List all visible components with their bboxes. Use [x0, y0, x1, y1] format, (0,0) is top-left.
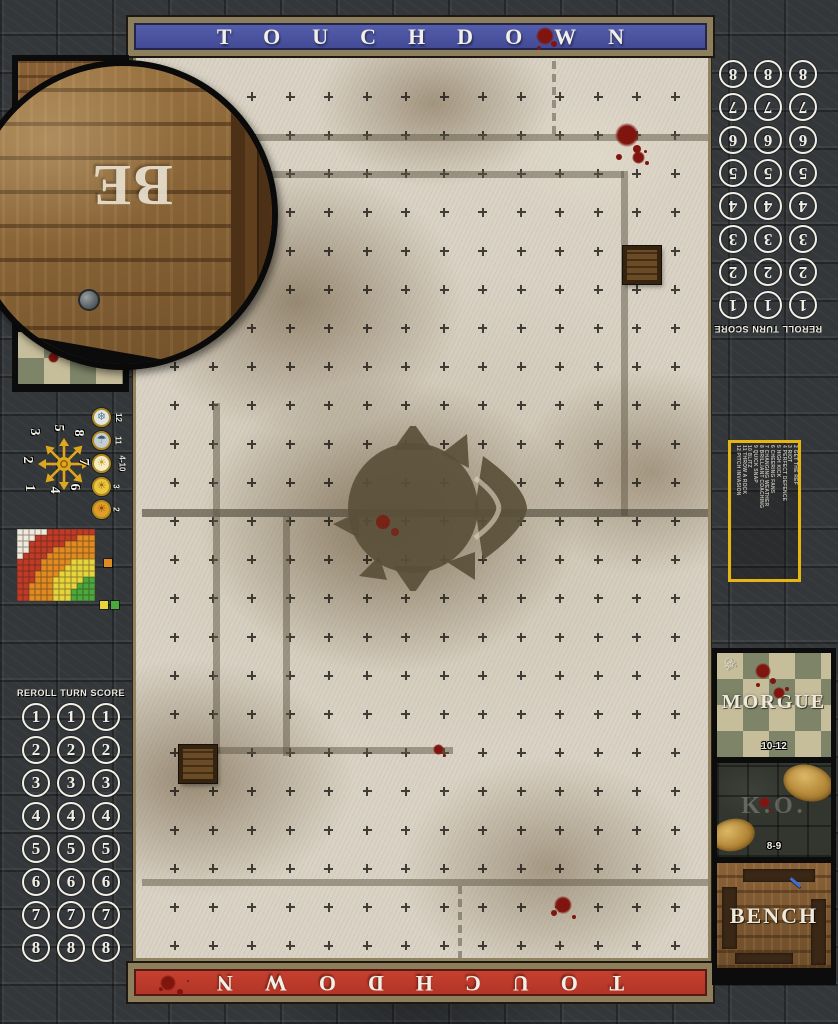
grid-cross: [170, 941, 179, 950]
grid-cross: [555, 941, 564, 950]
track-circle-6: 6: [754, 126, 782, 154]
track-row-4: 444: [710, 192, 826, 220]
pitch-line: [142, 879, 708, 886]
stud-knob: [78, 289, 100, 311]
grid-cross: [247, 478, 256, 487]
scatter-direction-8: 8: [70, 425, 86, 441]
grid-cross: [170, 478, 179, 487]
grid-cross: [170, 401, 179, 410]
grid-cross: [594, 401, 603, 410]
grid-cross: [594, 941, 603, 950]
track-circle-2: 2: [92, 736, 120, 764]
grid-cross: [209, 941, 218, 950]
grid-cross: [170, 787, 179, 796]
grid-cross: [363, 710, 372, 719]
grid-cross: [478, 285, 487, 294]
grid-cross: [324, 787, 333, 796]
grid-cross: [594, 787, 603, 796]
dugout-right: ☠ MORGUE 10-12 K.O. 8-9 BENCH: [712, 648, 836, 985]
grid-cross: [632, 748, 641, 757]
grid-cross: [671, 787, 680, 796]
grid-cross: [555, 92, 564, 101]
grid-cross: [594, 362, 603, 371]
grid-cross: [440, 633, 449, 642]
track-circle-1: 1: [719, 291, 747, 319]
grid-cross: [632, 633, 641, 642]
grid-cross: [363, 208, 372, 217]
track-row-2: 222: [13, 736, 129, 764]
grid-cross: [170, 903, 179, 912]
weather-entry-3: ☀3: [92, 477, 118, 496]
grid-cross: [286, 247, 295, 256]
grid-cross: [286, 478, 295, 487]
track-circle-1: 1: [789, 291, 817, 319]
grid-cross: [363, 594, 372, 603]
grid-cross: [632, 478, 641, 487]
scatter-direction-7: 7: [75, 454, 91, 470]
bench-label: BENCH: [717, 903, 831, 929]
bench-box: BENCH: [717, 863, 831, 968]
grid-cross: [594, 671, 603, 680]
grid-cross: [247, 401, 256, 410]
reroll-label: REROLL: [17, 688, 57, 698]
grid-cross: [632, 903, 641, 912]
grid-cross: [632, 324, 641, 333]
grid-cross: [440, 247, 449, 256]
grid-cross: [170, 555, 179, 564]
grid-cross: [594, 903, 603, 912]
grid-cross: [671, 826, 680, 835]
track-circle-6: 6: [789, 126, 817, 154]
track-circle-7: 7: [92, 901, 120, 929]
blood-splat: [632, 151, 645, 164]
range-legend-swatch: [104, 559, 112, 567]
grid-cross: [209, 787, 218, 796]
grid-cross: [401, 594, 410, 603]
track-circle-5: 5: [754, 159, 782, 187]
grid-cross: [555, 710, 564, 719]
grid-cross: [324, 941, 333, 950]
sweltering-heat-icon: ☀: [92, 500, 111, 519]
blood-splat: [759, 797, 770, 808]
pitch-line: [213, 747, 453, 754]
grid-cross: [286, 826, 295, 835]
grid-cross: [555, 787, 564, 796]
grid-cross: [247, 440, 256, 449]
grid-cross: [671, 671, 680, 680]
grid-cross: [632, 362, 641, 371]
blood-splat: [433, 744, 444, 755]
grid-cross: [363, 324, 372, 333]
blood-splat: [615, 123, 639, 147]
grid-cross: [632, 285, 641, 294]
grid-cross: [363, 247, 372, 256]
track-circle-7: 7: [22, 901, 50, 929]
grid-cross: [170, 633, 179, 642]
grid-cross: [594, 517, 603, 526]
perfect-weather-icon: ☀: [92, 454, 111, 473]
track-circle-3: 3: [789, 225, 817, 253]
grid-cross: [594, 633, 603, 642]
touchdown-banner-top-bar: TOUCHDOWN: [134, 23, 707, 50]
grid-cross: [555, 633, 564, 642]
blood-bowl-pitch-mat: TOUCHDOWN TOUCHDOWN REROLL TURN SCORE 11…: [0, 0, 838, 1024]
grid-cross: [440, 401, 449, 410]
track-row-5: 555: [710, 159, 826, 187]
grid-cross: [671, 478, 680, 487]
grid-cross: [671, 941, 680, 950]
grid-cross: [671, 324, 680, 333]
grid-cross: [594, 748, 603, 757]
grid-cross: [555, 247, 564, 256]
grid-cross: [440, 92, 449, 101]
grid-cross: [363, 285, 372, 294]
magnified-bench-letters: BE: [66, 140, 196, 230]
track-circle-5: 5: [22, 835, 50, 863]
pitch-line-dashed: [458, 886, 462, 959]
grid-cross: [440, 362, 449, 371]
track-circle-2: 2: [57, 736, 85, 764]
magnified-plank: [231, 66, 278, 364]
grid-cross: [247, 594, 256, 603]
grid-cross: [555, 478, 564, 487]
grid-cross: [632, 710, 641, 719]
track-circle-4: 4: [57, 802, 85, 830]
grid-cross: [324, 92, 333, 101]
grid-cross: [363, 787, 372, 796]
grid-cross: [478, 787, 487, 796]
score-label: SCORE: [714, 324, 749, 334]
track-circle-8: 8: [789, 60, 817, 88]
grid-cross: [401, 787, 410, 796]
grid-cross: [555, 826, 564, 835]
grid-cross: [401, 401, 410, 410]
grid-cross: [286, 92, 295, 101]
weather-value: 3: [112, 484, 121, 488]
grid-cross: [286, 787, 295, 796]
grid-cross: [247, 787, 256, 796]
grid-cross: [170, 710, 179, 719]
grid-cross: [286, 324, 295, 333]
grid-cross: [517, 787, 526, 796]
grid-cross: [170, 440, 179, 449]
grid-cross: [170, 864, 179, 873]
track-circle-3: 3: [719, 225, 747, 253]
grid-cross: [594, 864, 603, 873]
grid-cross: [324, 362, 333, 371]
bench-plank: [735, 953, 793, 964]
track-circle-6: 6: [92, 868, 120, 896]
grid-cross: [594, 478, 603, 487]
track-circle-2: 2: [754, 258, 782, 286]
grid-cross: [555, 748, 564, 757]
track-circle-5: 5: [789, 159, 817, 187]
grid-cross: [324, 710, 333, 719]
track-circle-4: 4: [92, 802, 120, 830]
grid-cross: [671, 247, 680, 256]
grid-cross: [401, 903, 410, 912]
grid-cross: [555, 208, 564, 217]
grid-cross: [247, 517, 256, 526]
track-circle-1: 1: [22, 703, 50, 731]
grid-cross: [478, 826, 487, 835]
scatter-direction-2: 2: [19, 452, 35, 468]
grid-cross: [671, 285, 680, 294]
grid-cross: [478, 92, 487, 101]
grid-cross: [671, 440, 680, 449]
range-legend-swatch: [100, 601, 108, 609]
track-circle-4: 4: [789, 192, 817, 220]
grid-cross: [594, 208, 603, 217]
grid-cross: [247, 555, 256, 564]
track-rows: 111222333444555666777888: [13, 703, 129, 962]
grid-cross: [555, 285, 564, 294]
grid-cross: [440, 324, 449, 333]
track-circle-8: 8: [754, 60, 782, 88]
grid-cross: [209, 864, 218, 873]
grid-cross: [286, 362, 295, 371]
track-circle-7: 7: [57, 901, 85, 929]
grid-cross: [401, 710, 410, 719]
grid-cross: [478, 401, 487, 410]
kickoff-line: 6 CHEERING FANS: [768, 445, 774, 579]
grid-cross: [517, 826, 526, 835]
grid-cross: [478, 710, 487, 719]
grid-cross: [594, 92, 603, 101]
scatter-direction-3: 3: [26, 424, 42, 440]
grid-cross: [555, 324, 564, 333]
grid-cross: [363, 903, 372, 912]
grid-cross: [478, 671, 487, 680]
track-circle-3: 3: [57, 769, 85, 797]
crate-top: [623, 246, 661, 284]
grid-cross: [671, 208, 680, 217]
touchdown-banner-top: TOUCHDOWN: [128, 17, 713, 56]
ko-label: K.O.: [717, 793, 831, 820]
track-circle-8: 8: [92, 934, 120, 962]
track-row-6: 666: [13, 868, 129, 896]
grid-cross: [478, 748, 487, 757]
blood-splat: [755, 663, 771, 679]
grid-cross: [517, 710, 526, 719]
grid-cross: [440, 826, 449, 835]
grid-cross: [555, 401, 564, 410]
grid-cross: [478, 633, 487, 642]
grid-cross: [401, 324, 410, 333]
track-circle-3: 3: [754, 225, 782, 253]
skeleton-icon: ☠: [720, 653, 740, 675]
scatter-direction-6: 6: [66, 479, 82, 495]
track-circle-1: 1: [92, 703, 120, 731]
bench-plank: [743, 869, 815, 882]
track-circle-3: 3: [92, 769, 120, 797]
track-circle-4: 4: [22, 802, 50, 830]
grid-cross: [170, 826, 179, 835]
track-circle-6: 6: [719, 126, 747, 154]
grid-cross: [440, 903, 449, 912]
grid-cross: [517, 671, 526, 680]
grid-cross: [517, 594, 526, 603]
grid-cross: [440, 941, 449, 950]
scatter-direction-4: 4: [46, 482, 62, 498]
crate-bottom: [179, 745, 217, 783]
grid-cross: [555, 517, 564, 526]
grid-cross: [478, 903, 487, 912]
grid-cross: [517, 285, 526, 294]
track-circle-8: 8: [719, 60, 747, 88]
grid-cross: [594, 285, 603, 294]
grid-cross: [401, 362, 410, 371]
track-row-7: 777: [13, 901, 129, 929]
morgue-box: ☠ MORGUE 10-12: [717, 653, 831, 757]
grid-cross: [440, 864, 449, 873]
weather-entry-11: ☂11: [92, 431, 122, 450]
score-track-left: REROLL TURN SCORE 1112223334445556667778…: [13, 688, 129, 962]
grid-cross: [401, 826, 410, 835]
grid-cross: [363, 671, 372, 680]
grid-cross: [671, 594, 680, 603]
track-row-1: 111: [710, 291, 826, 319]
grid-cross: [247, 903, 256, 912]
weather-value: 11: [114, 436, 123, 444]
grid-cross: [286, 401, 295, 410]
touchdown-banner-bottom: TOUCHDOWN: [128, 963, 713, 1002]
track-row-5: 555: [13, 835, 129, 863]
kickoff-table: 2 GET THE REF3 RIOT4 PERFECT DEFENCE5 HI…: [728, 440, 801, 582]
track-circle-4: 4: [719, 192, 747, 220]
touchdown-banner-bottom-bar: TOUCHDOWN: [134, 969, 707, 996]
grid-cross: [671, 710, 680, 719]
grid-cross: [478, 208, 487, 217]
grid-cross: [401, 208, 410, 217]
grid-cross: [517, 941, 526, 950]
scatter-direction-1: 1: [21, 480, 37, 496]
track-circle-2: 2: [22, 736, 50, 764]
grid-cross: [324, 324, 333, 333]
grid-cross: [363, 401, 372, 410]
grid-cross: [671, 92, 680, 101]
grid-cross: [440, 787, 449, 796]
score-label: SCORE: [90, 688, 125, 698]
weather-entry-2: ☀2: [92, 500, 118, 519]
weather-value: 4-10: [118, 455, 127, 471]
blizzard-icon: ❄: [92, 408, 111, 427]
weather-entry-4-10: ☀4-10: [92, 454, 130, 473]
track-header: REROLL TURN SCORE: [13, 688, 129, 698]
grid-cross: [247, 864, 256, 873]
grid-cross: [209, 362, 218, 371]
grid-cross: [478, 864, 487, 873]
grid-cross: [632, 941, 641, 950]
grid-cross: [286, 285, 295, 294]
grid-cross: [401, 247, 410, 256]
grid-cross: [517, 864, 526, 873]
grid-cross: [632, 864, 641, 873]
grid-cross: [632, 169, 641, 178]
grid-cross: [517, 401, 526, 410]
grid-cross: [324, 633, 333, 642]
track-circle-1: 1: [754, 291, 782, 319]
grid-cross: [517, 903, 526, 912]
reroll-label: REROLL: [782, 324, 822, 334]
grid-cross: [363, 633, 372, 642]
grid-cross: [324, 671, 333, 680]
grid-cross: [209, 826, 218, 835]
weather-value: 2: [112, 507, 121, 511]
grid-cross: [324, 285, 333, 294]
center-logo: [325, 426, 530, 591]
grid-cross: [594, 440, 603, 449]
grid-cross: [324, 594, 333, 603]
grid-cross: [671, 748, 680, 757]
weather-entry-12: ❄12: [92, 408, 123, 427]
blood-splat: [554, 896, 572, 914]
rain-icon: ☂: [92, 431, 111, 450]
grid-cross: [286, 440, 295, 449]
track-circle-5: 5: [719, 159, 747, 187]
grid-cross: [401, 285, 410, 294]
grid-cross: [170, 748, 179, 757]
grid-cross: [324, 903, 333, 912]
track-circle-7: 7: [754, 93, 782, 121]
kickoff-line: 5 HIGH KICK: [774, 445, 780, 579]
pass-range-ruler: [17, 529, 95, 601]
grid-cross: [555, 555, 564, 564]
grid-cross: [247, 671, 256, 680]
morgue-range: 10-12: [717, 741, 831, 752]
grid-cross: [170, 671, 179, 680]
grid-cross: [671, 864, 680, 873]
grid-cross: [440, 710, 449, 719]
track-row-7: 777: [710, 93, 826, 121]
pitch-line: [621, 171, 628, 516]
blood-splat: [376, 515, 390, 529]
grid-cross: [517, 247, 526, 256]
kickoff-line: 9 QUICK SNAP: [751, 445, 757, 579]
grid-cross: [632, 671, 641, 680]
grid-cross: [478, 247, 487, 256]
track-row-8: 888: [710, 60, 826, 88]
grid-cross: [363, 941, 372, 950]
grid-cross: [594, 710, 603, 719]
grid-cross: [324, 247, 333, 256]
kickoff-table-lines: 2 GET THE REF3 RIOT4 PERFECT DEFENCE5 HI…: [734, 445, 797, 579]
weather-value: 12: [114, 413, 123, 422]
grid-cross: [401, 864, 410, 873]
track-circle-2: 2: [719, 258, 747, 286]
grid-cross: [363, 864, 372, 873]
track-circle-5: 5: [92, 835, 120, 863]
grid-cross: [671, 903, 680, 912]
grid-cross: [324, 826, 333, 835]
grid-cross: [555, 671, 564, 680]
grid-cross: [555, 594, 564, 603]
grid-cross: [671, 555, 680, 564]
grid-cross: [632, 555, 641, 564]
grid-cross: [401, 941, 410, 950]
track-row-2: 222: [710, 258, 826, 286]
kickoff-line: 12 PITCH INVASION: [734, 445, 740, 579]
grid-cross: [247, 633, 256, 642]
grid-cross: [401, 92, 410, 101]
grid-cross: [632, 92, 641, 101]
magnifier-inset: BE: [0, 60, 278, 370]
grid-cross: [671, 362, 680, 371]
track-circle-8: 8: [22, 934, 50, 962]
grid-cross: [632, 401, 641, 410]
grid-cross: [401, 671, 410, 680]
grid-cross: [440, 208, 449, 217]
